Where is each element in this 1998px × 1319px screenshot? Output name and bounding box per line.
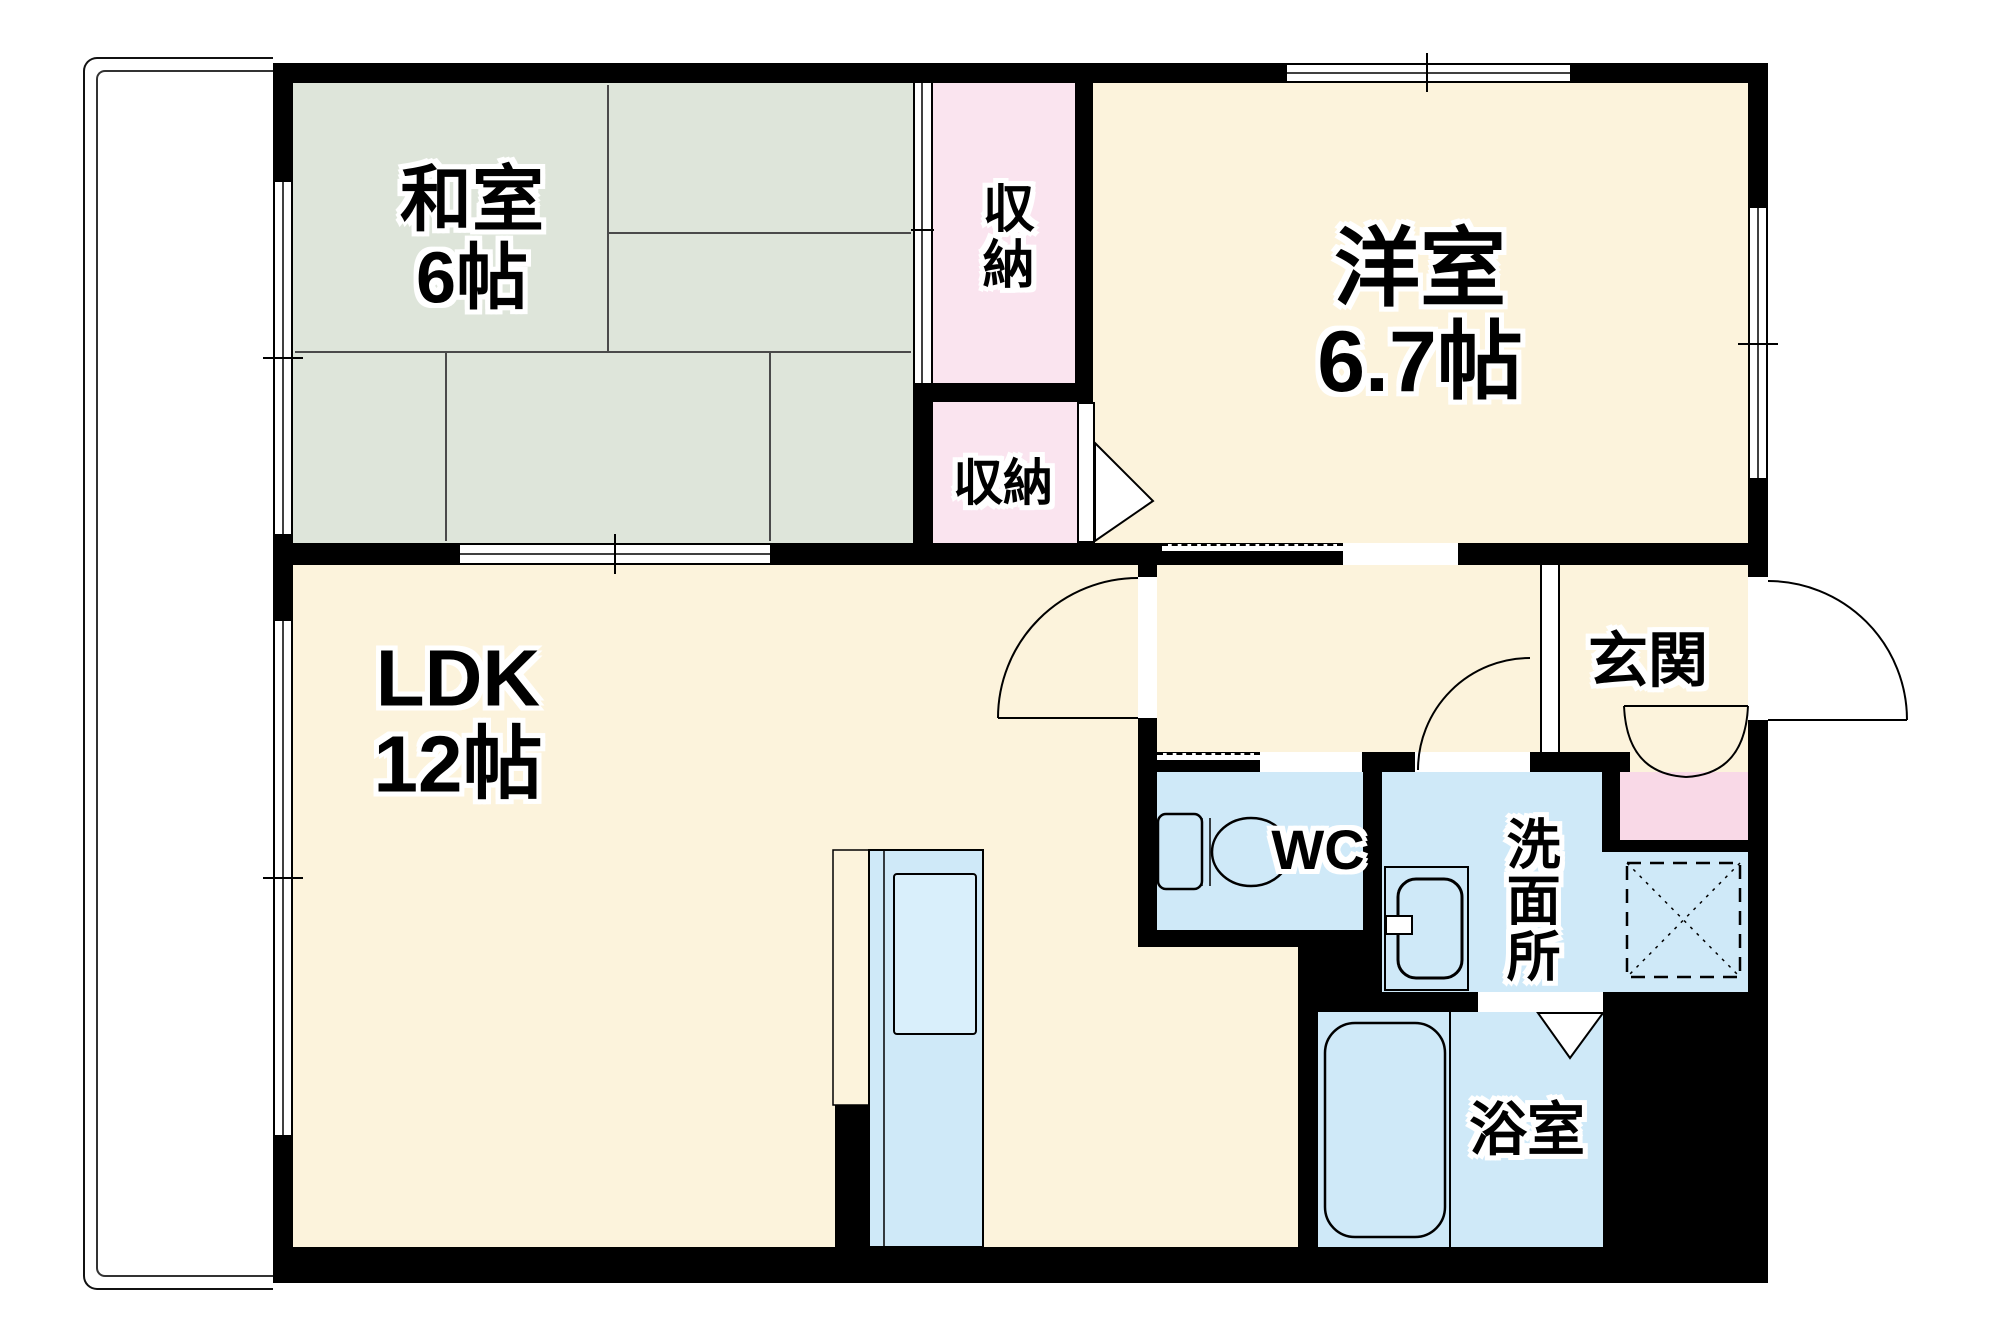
label-youshitsu-name: 洋室 [1317,223,1523,316]
door-arc-ldk [998,578,1138,718]
label-yokushitsu: 浴室 [1469,1100,1585,1163]
door-arc-senmenjo [1418,658,1530,770]
label-wc: WC [1271,820,1364,880]
label-youshitsu-size: 6.7帖 [1317,316,1523,409]
label-ldk: LDK 12帖 [374,636,543,809]
door-swings [998,578,1907,777]
label-washitsu-name: 和室 [400,162,544,240]
floor-plan: 和室 6帖 収納 収納 洋室 6.7帖 LDK 12帖 玄関 WC 洗面所 浴室 [0,0,1998,1319]
washer-space-icon [1627,863,1740,977]
label-closet-lower: 収納 [953,456,1053,510]
toilet-icon [1158,814,1290,889]
label-youshitsu: 洋室 6.7帖 [1317,223,1523,409]
cabinet-door-arc-right [1686,706,1748,777]
label-ldk-size: 12帖 [374,722,543,808]
door-triangle-closet-lower [1095,443,1153,541]
door-arc-entry [1768,581,1907,720]
label-ldk-name: LDK [374,636,543,722]
vanity-sink-icon [1385,867,1468,990]
label-senmenjo: 洗面所 [1499,816,1557,984]
tatami-lines [295,85,911,541]
label-washitsu-size: 6帖 [400,240,544,318]
label-washitsu: 和室 6帖 [400,162,544,318]
bath-folding-door [1538,1013,1603,1058]
label-closet-upper: 収納 [975,181,1031,293]
kitchen-counter-icon [833,850,983,1247]
label-genkan: 玄関 [1588,630,1708,695]
bathtub-icon [1325,1012,1450,1247]
cabinet-door-arc-left [1624,706,1686,777]
